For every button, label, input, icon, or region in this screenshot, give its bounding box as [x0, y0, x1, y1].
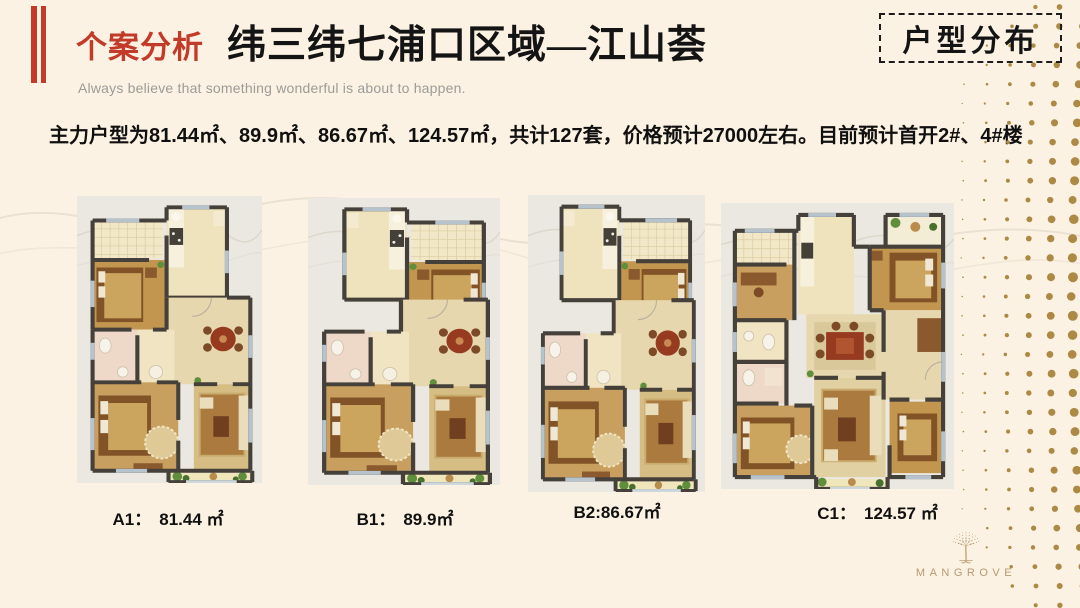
- floor-plan-c1-image: [721, 203, 954, 489]
- logo: MANGROVE: [903, 532, 1029, 579]
- floor-plan-b2-image: [528, 195, 705, 492]
- unit-id: A1: [113, 510, 135, 529]
- unit-area: 86.67㎡: [601, 503, 661, 522]
- floor-plan-b2-label: B2:86.67㎡: [537, 498, 697, 523]
- floor-plan-b1-label: B1：89.9㎡: [325, 505, 485, 530]
- unit-id: C1: [817, 504, 839, 523]
- unit-id: B2: [574, 503, 596, 522]
- unit-area: 81.44 ㎡: [159, 510, 223, 529]
- separator: ：: [378, 510, 395, 529]
- unit-id: B1: [357, 510, 379, 529]
- separator: ：: [839, 504, 856, 523]
- floor-plan-c1-label: C1：124.57 ㎡: [795, 499, 960, 524]
- corner-tag: 户型分布: [879, 13, 1062, 63]
- floor-plan-a1-image: [77, 196, 262, 483]
- floor-plan-a1-label: A1：81.44 ㎡: [88, 505, 248, 530]
- slide: 个案分析 纬三纬七浦口区域—江山荟 Always believe that so…: [0, 0, 1080, 608]
- logo-text: MANGROVE: [903, 567, 1029, 579]
- unit-area: 124.57 ㎡: [864, 504, 938, 523]
- mangrove-tree-icon: [950, 532, 982, 564]
- separator: ：: [134, 510, 151, 529]
- floor-plan-b1-image: [308, 198, 500, 485]
- unit-area: 89.9㎡: [403, 510, 453, 529]
